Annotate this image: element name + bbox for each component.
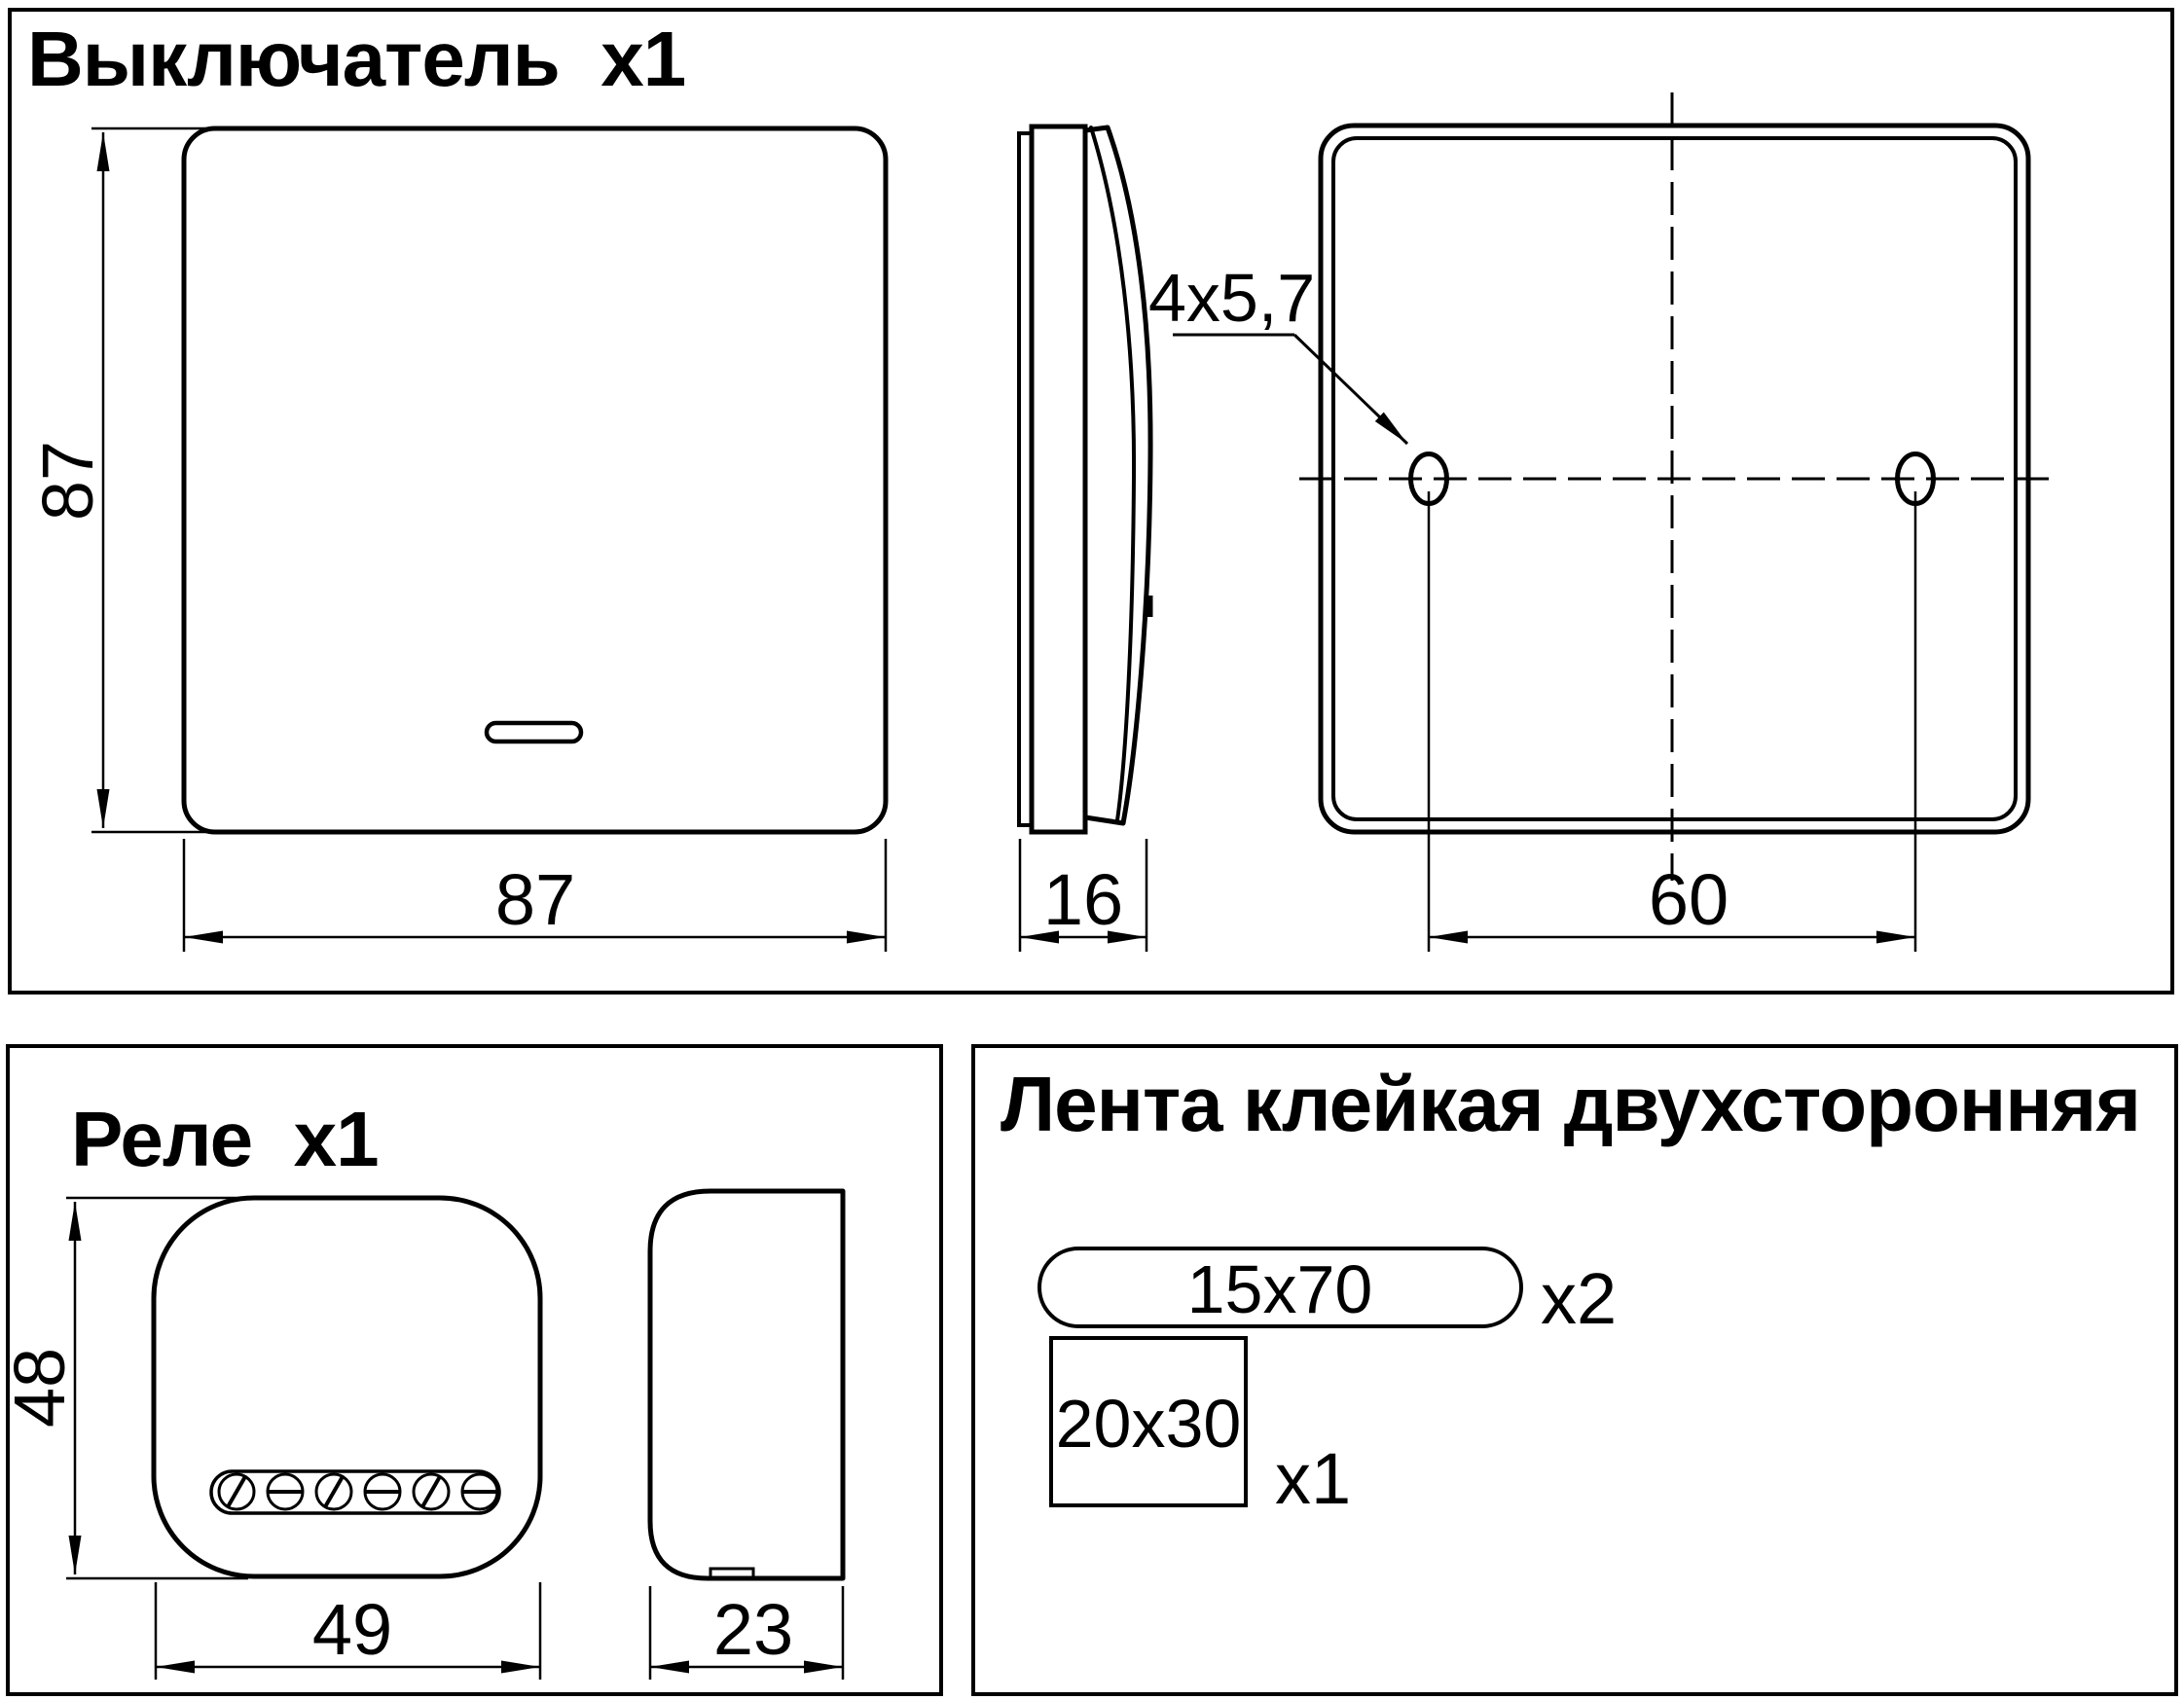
switch-panel-border bbox=[10, 10, 2172, 993]
tape-strip-size: 15x70 bbox=[1187, 1251, 1373, 1327]
screw-1-slot bbox=[228, 1476, 245, 1506]
tape-pad-size: 20x30 bbox=[1056, 1386, 1242, 1462]
screw-3-slot bbox=[325, 1476, 343, 1506]
dim-text-relay-depth: 23 bbox=[713, 1589, 793, 1670]
relay-side-outline bbox=[650, 1191, 843, 1578]
switch-front-view: 87 87 bbox=[27, 128, 886, 952]
relay-terminal-screws bbox=[219, 1474, 497, 1509]
holes-label: 4x5,7 bbox=[1148, 260, 1315, 336]
switch-front-outline bbox=[184, 128, 886, 832]
switch-side-body bbox=[1032, 127, 1085, 832]
switch-indicator-slot bbox=[487, 723, 581, 741]
dim-text-relay-height: 48 bbox=[0, 1348, 80, 1428]
tape-pad-item: 20x30 x1 bbox=[1051, 1338, 1351, 1519]
relay-side-view: 23 bbox=[650, 1191, 843, 1680]
tape-pad-qty: x1 bbox=[1275, 1438, 1351, 1519]
tape-panel-title: Лента клейкая двухсторонняя bbox=[1001, 1061, 2140, 1147]
relay-front-view: 48 49 bbox=[0, 1198, 540, 1680]
dim-text-switch-width: 87 bbox=[495, 859, 575, 940]
tape-panel: Лента клейкая двухсторонняя 15x70 x2 20x… bbox=[973, 1046, 2176, 1694]
switch-side-view: 16 bbox=[1019, 127, 1150, 952]
relay-panel: Реле x1 48 bbox=[0, 1046, 941, 1694]
relay-panel-title: Реле x1 bbox=[71, 1096, 379, 1182]
leader-line bbox=[1294, 335, 1407, 444]
switch-side-rocker-inner-curve bbox=[1091, 127, 1134, 820]
dim-text-switch-height: 87 bbox=[27, 441, 108, 521]
switch-panel: Выключатель x1 87 87 bbox=[10, 10, 2172, 993]
tape-strip-item: 15x70 x2 bbox=[1039, 1248, 1617, 1339]
packaging-contents-drawing: Выключатель x1 87 87 bbox=[0, 0, 2184, 1700]
dim-text-hole-spacing: 60 bbox=[1649, 859, 1729, 940]
tape-strip-qty: x2 bbox=[1541, 1258, 1617, 1339]
relay-front-outline bbox=[154, 1198, 540, 1576]
dim-text-relay-width: 49 bbox=[312, 1589, 392, 1670]
dim-text-switch-depth: 16 bbox=[1043, 859, 1123, 940]
switch-side-rocker-outline bbox=[1085, 127, 1150, 823]
screw-5-slot bbox=[422, 1476, 440, 1506]
switch-back-view: 4x5,7 60 bbox=[1148, 92, 2056, 952]
switch-panel-title: Выключатель x1 bbox=[27, 16, 685, 102]
relay-side-clip bbox=[710, 1569, 753, 1578]
